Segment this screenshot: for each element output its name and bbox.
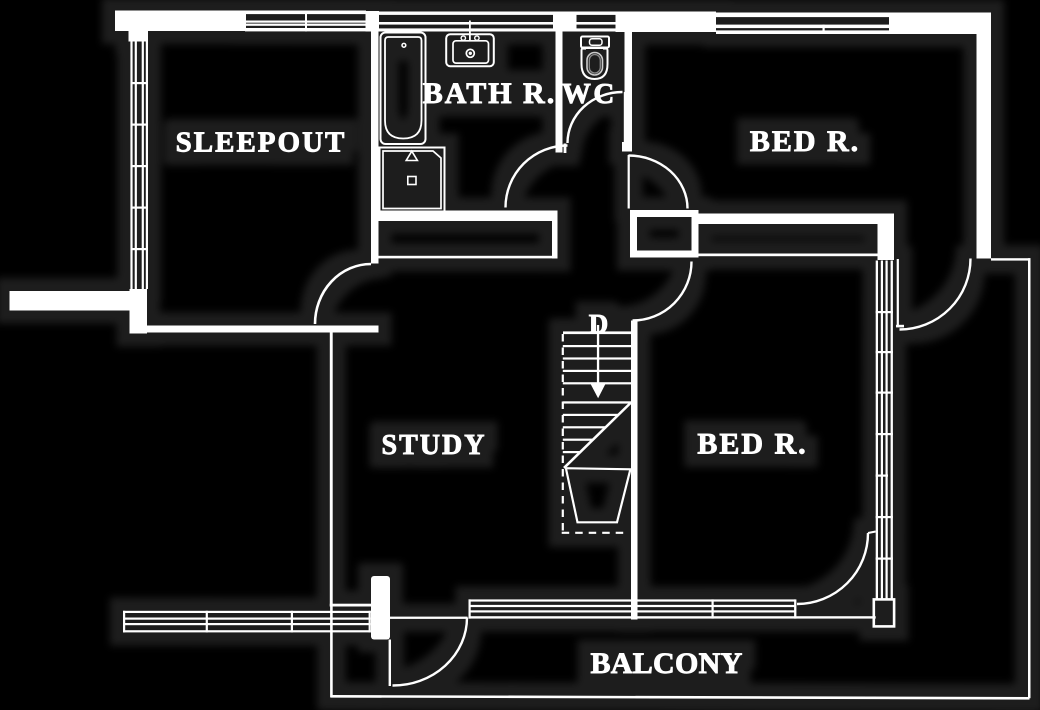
svg-text:BED R.: BED R. bbox=[697, 428, 807, 461]
svg-text:BATH R.: BATH R. bbox=[423, 77, 556, 110]
svg-text:STUDY: STUDY bbox=[382, 430, 487, 461]
svg-text:SLEEPOUT: SLEEPOUT bbox=[176, 127, 347, 159]
svg-text:BED R.: BED R. bbox=[750, 125, 860, 158]
svg-text:BALCONY: BALCONY bbox=[590, 647, 742, 680]
svg-text:D: D bbox=[589, 309, 609, 339]
svg-text:WC: WC bbox=[562, 78, 617, 110]
